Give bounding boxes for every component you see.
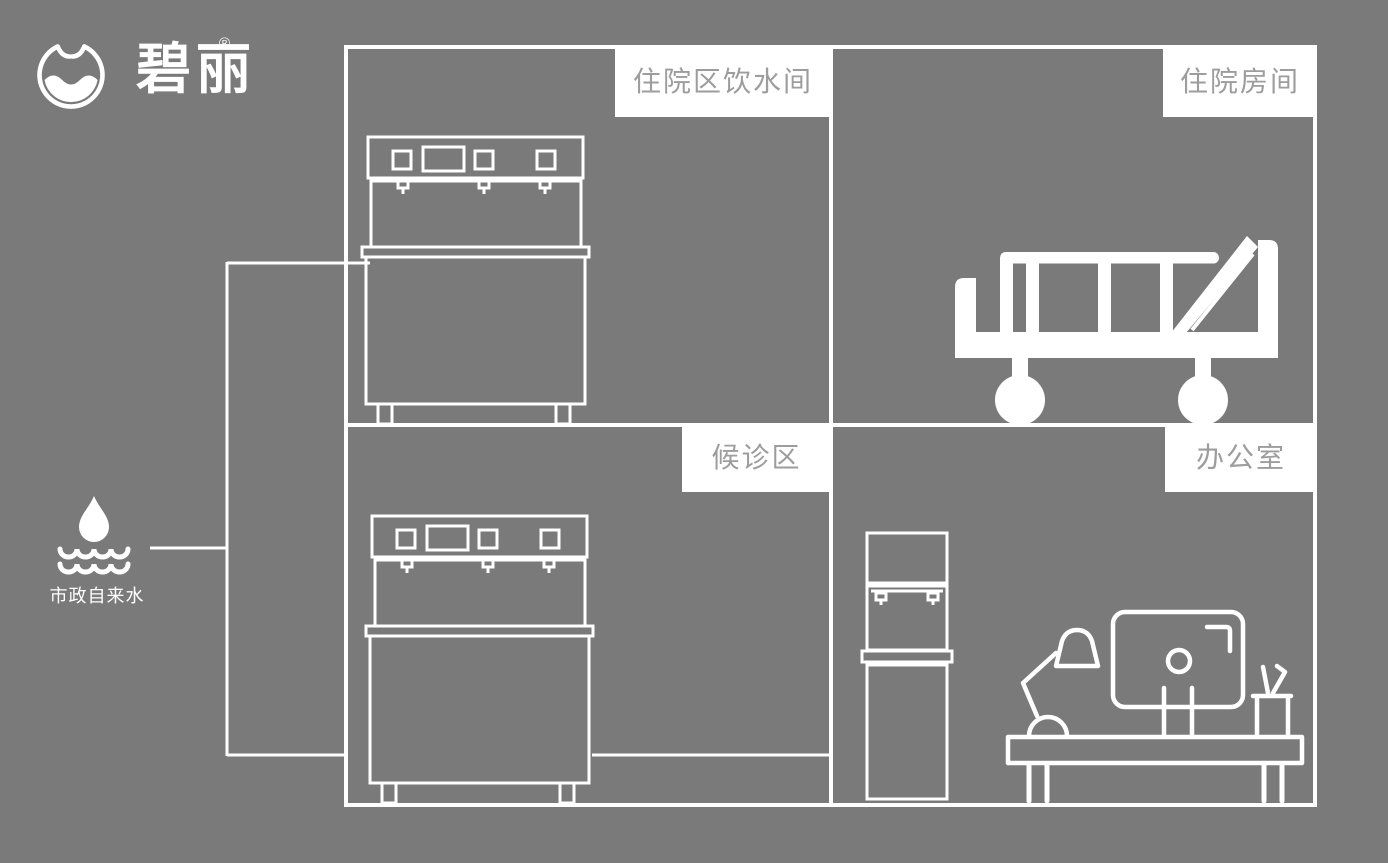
water-waves-icon [60,549,128,572]
desk-icon [1008,737,1302,801]
room-label-inpatient-room: 住院房间 [1163,47,1317,117]
counter-top-water-dispenser-icon-1 [362,137,589,424]
municipal-water-label: 市政自来水 [32,582,162,608]
hospital-bed-icon [955,236,1278,425]
room-label-waiting-area: 候诊区 [682,423,831,492]
room-label-inpatient-water-room: 住院区饮水间 [615,47,831,117]
scene-diagram: 碧丽 ® 住院区饮水间 住院房间 候诊区 办公室 市政自来水 [0,0,1388,863]
standing-water-dispenser-icon [862,533,952,799]
office-desk-scene [1008,612,1302,801]
counter-top-water-dispenser-icon-2 [366,516,593,803]
water-drop-icon [79,496,109,542]
room-label-office: 办公室 [1165,423,1317,492]
desk-lamp-icon [1023,630,1098,736]
brand-name: 碧丽 [136,42,256,97]
logo-mark-icon [40,47,103,107]
monitor-icon [1113,612,1243,734]
pen-holder-icon [1253,666,1291,734]
registered-mark: ® [219,36,230,51]
water-pipes [150,262,831,756]
